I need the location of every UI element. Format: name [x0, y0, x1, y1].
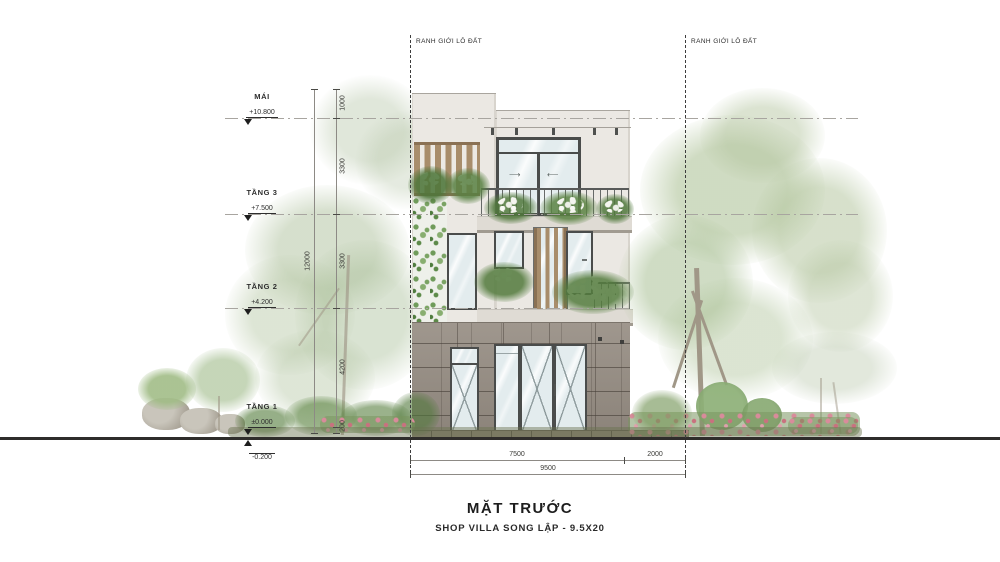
- level-tag-tang1: TẦNG 1 ±0.000: [232, 402, 292, 435]
- dim-value-parapet: 1000: [340, 95, 347, 111]
- dim-tick: [333, 433, 340, 434]
- level-elevation: ±0.000: [248, 419, 275, 428]
- dim-tick: [685, 471, 686, 478]
- level-name: TẦNG 2: [232, 282, 292, 291]
- lot-boundary-label-left: RANH GIỚI LÔ ĐẤT: [416, 38, 482, 45]
- level-elevation: +4.200: [248, 299, 276, 308]
- vertical-dim-line-segments: [336, 89, 337, 433]
- level-name: TẦNG 3: [232, 188, 292, 197]
- dim-value-setback: 2000: [647, 451, 663, 458]
- level-line-tang3: [225, 214, 858, 215]
- level-tag-tang3: TẦNG 3 +7.500: [232, 188, 292, 221]
- dim-tick: [410, 471, 411, 478]
- level-elevation: +10.800: [246, 109, 278, 118]
- dim-tick: [685, 457, 686, 464]
- dim-tick: [333, 89, 340, 90]
- dim-value-floor3: 3300: [340, 158, 347, 174]
- level-elevation: -0.200: [249, 453, 275, 462]
- lot-boundary-line-left: [410, 35, 411, 478]
- drawing-title: MẶT TRƯỚC: [467, 500, 573, 517]
- lot-boundary-line-right: [685, 35, 686, 478]
- dim-value-plinth: 200: [340, 420, 347, 432]
- level-elevation: +7.500: [248, 205, 276, 214]
- level-tag-tang2: TẦNG 2 +4.200: [232, 282, 292, 315]
- level-marker-icon: [244, 309, 252, 315]
- level-name: TẦNG 1: [232, 402, 292, 411]
- annotations: RANH GIỚI LÔ ĐẤT RANH GIỚI LÔ ĐẤT MÁI +1…: [0, 0, 1000, 562]
- level-tag-ground: -0.200: [232, 440, 292, 464]
- dim-value-overall-height: 12000: [305, 251, 312, 270]
- dim-value-floor1: 4200: [340, 359, 347, 375]
- level-tag-mai: MÁI +10.800: [232, 92, 292, 125]
- level-marker-icon: [244, 429, 252, 435]
- vertical-dim-line-overall: [314, 89, 315, 433]
- dim-tick: [333, 308, 340, 309]
- dim-tick: [311, 89, 318, 90]
- level-marker-icon: [244, 440, 252, 446]
- horizontal-dim-line-overall: [410, 474, 685, 475]
- dim-tick: [333, 118, 340, 119]
- dim-value-lot-width: 9500: [540, 465, 556, 472]
- level-marker-icon: [244, 119, 252, 125]
- level-marker-icon: [244, 215, 252, 221]
- elevation-drawing: ⟶ ⟵: [0, 0, 1000, 562]
- horizontal-dim-line-segments: [410, 460, 685, 461]
- drawing-subtitle: SHOP VILLA SONG LẬP - 9.5X20: [435, 523, 605, 534]
- dim-value-floor2: 3300: [340, 253, 347, 269]
- dim-tick: [410, 457, 411, 464]
- lot-boundary-label-right: RANH GIỚI LÔ ĐẤT: [691, 38, 757, 45]
- dim-value-building-width: 7500: [509, 451, 525, 458]
- dim-tick: [333, 214, 340, 215]
- dim-tick: [311, 433, 318, 434]
- dim-tick: [624, 457, 625, 464]
- level-name: MÁI: [232, 92, 292, 101]
- level-line-mai: [225, 118, 858, 119]
